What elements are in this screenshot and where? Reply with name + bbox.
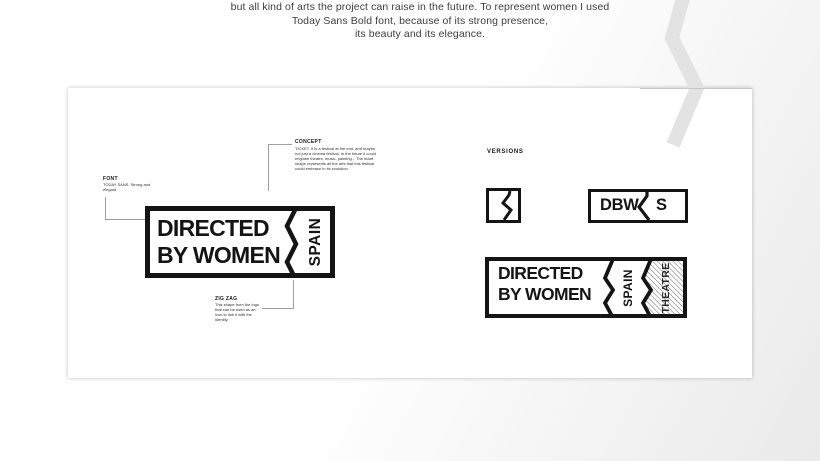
zigzag-connector-line	[293, 280, 294, 308]
extended-sector: THEATRE	[660, 261, 672, 315]
versions-title: VERSIONS	[487, 149, 524, 155]
concept-annotation-body: TICKET. It is a festival at the end, and…	[295, 147, 379, 172]
font-connector-line	[105, 219, 150, 220]
font-annotation-body: TODAY SANS. Strong and elegant.	[103, 183, 153, 193]
monogram-right: S	[656, 196, 667, 215]
zigzag-connector-line	[262, 308, 294, 309]
version-monogram: DBW S	[588, 189, 688, 223]
font-connector-line	[105, 197, 106, 219]
card-top-edge	[640, 88, 752, 89]
zigzag-decoration-icon	[650, 0, 720, 158]
main-logo-line1: DIRECTED	[157, 215, 280, 242]
extended-line2: BY WOMEN	[498, 284, 591, 305]
main-logo-country: SPAIN	[307, 206, 327, 278]
version-extended: DIRECTED BY WOMEN SPAIN THEATRE	[485, 257, 687, 318]
concept-connector-line	[268, 144, 269, 191]
zigzag-annotation-body: This shape from the logo that can be use…	[215, 303, 261, 323]
extended-line1: DIRECTED	[498, 263, 591, 284]
concept-annotation-title: CONCEPT	[295, 139, 322, 145]
concept-connector-line	[268, 144, 292, 145]
zigzag-square-mark-icon	[486, 188, 521, 223]
extended-wordmark: DIRECTED BY WOMEN	[498, 263, 591, 305]
main-logo: DIRECTED BY WOMEN SPAIN	[145, 206, 335, 278]
main-logo-wordmark: DIRECTED BY WOMEN	[157, 215, 280, 269]
monogram-left: DBW	[600, 196, 639, 215]
extended-country: SPAIN	[621, 261, 635, 315]
main-logo-line2: BY WOMEN	[157, 242, 280, 269]
version-square-mark	[486, 188, 521, 223]
